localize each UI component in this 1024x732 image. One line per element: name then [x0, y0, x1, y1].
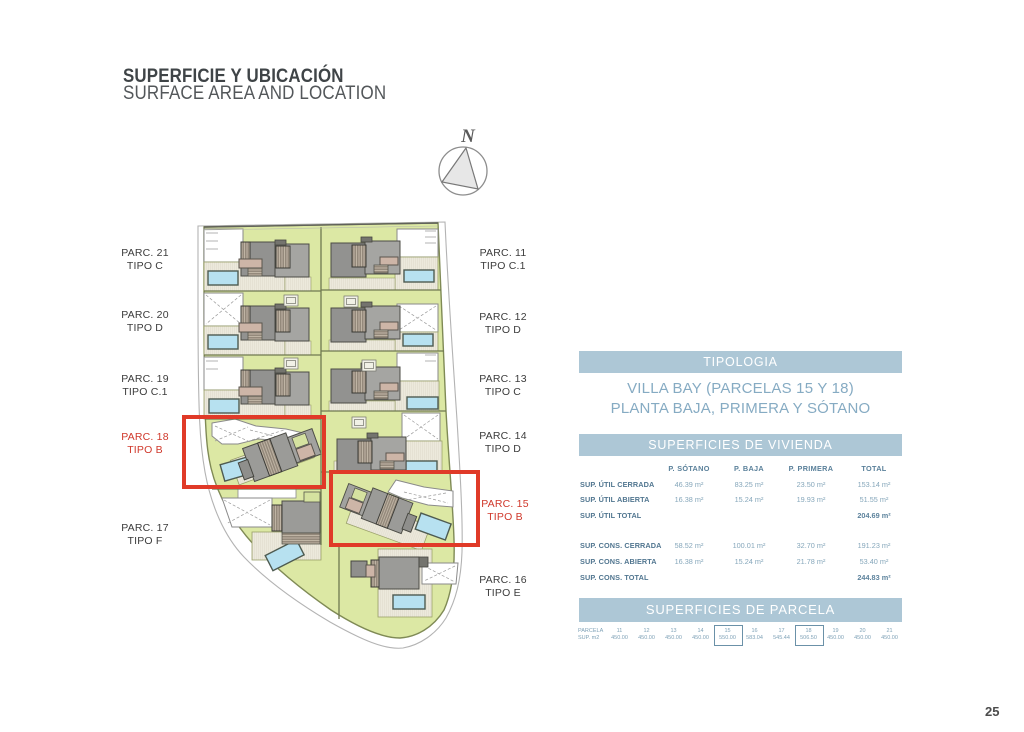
svg-text:N: N: [460, 126, 476, 147]
